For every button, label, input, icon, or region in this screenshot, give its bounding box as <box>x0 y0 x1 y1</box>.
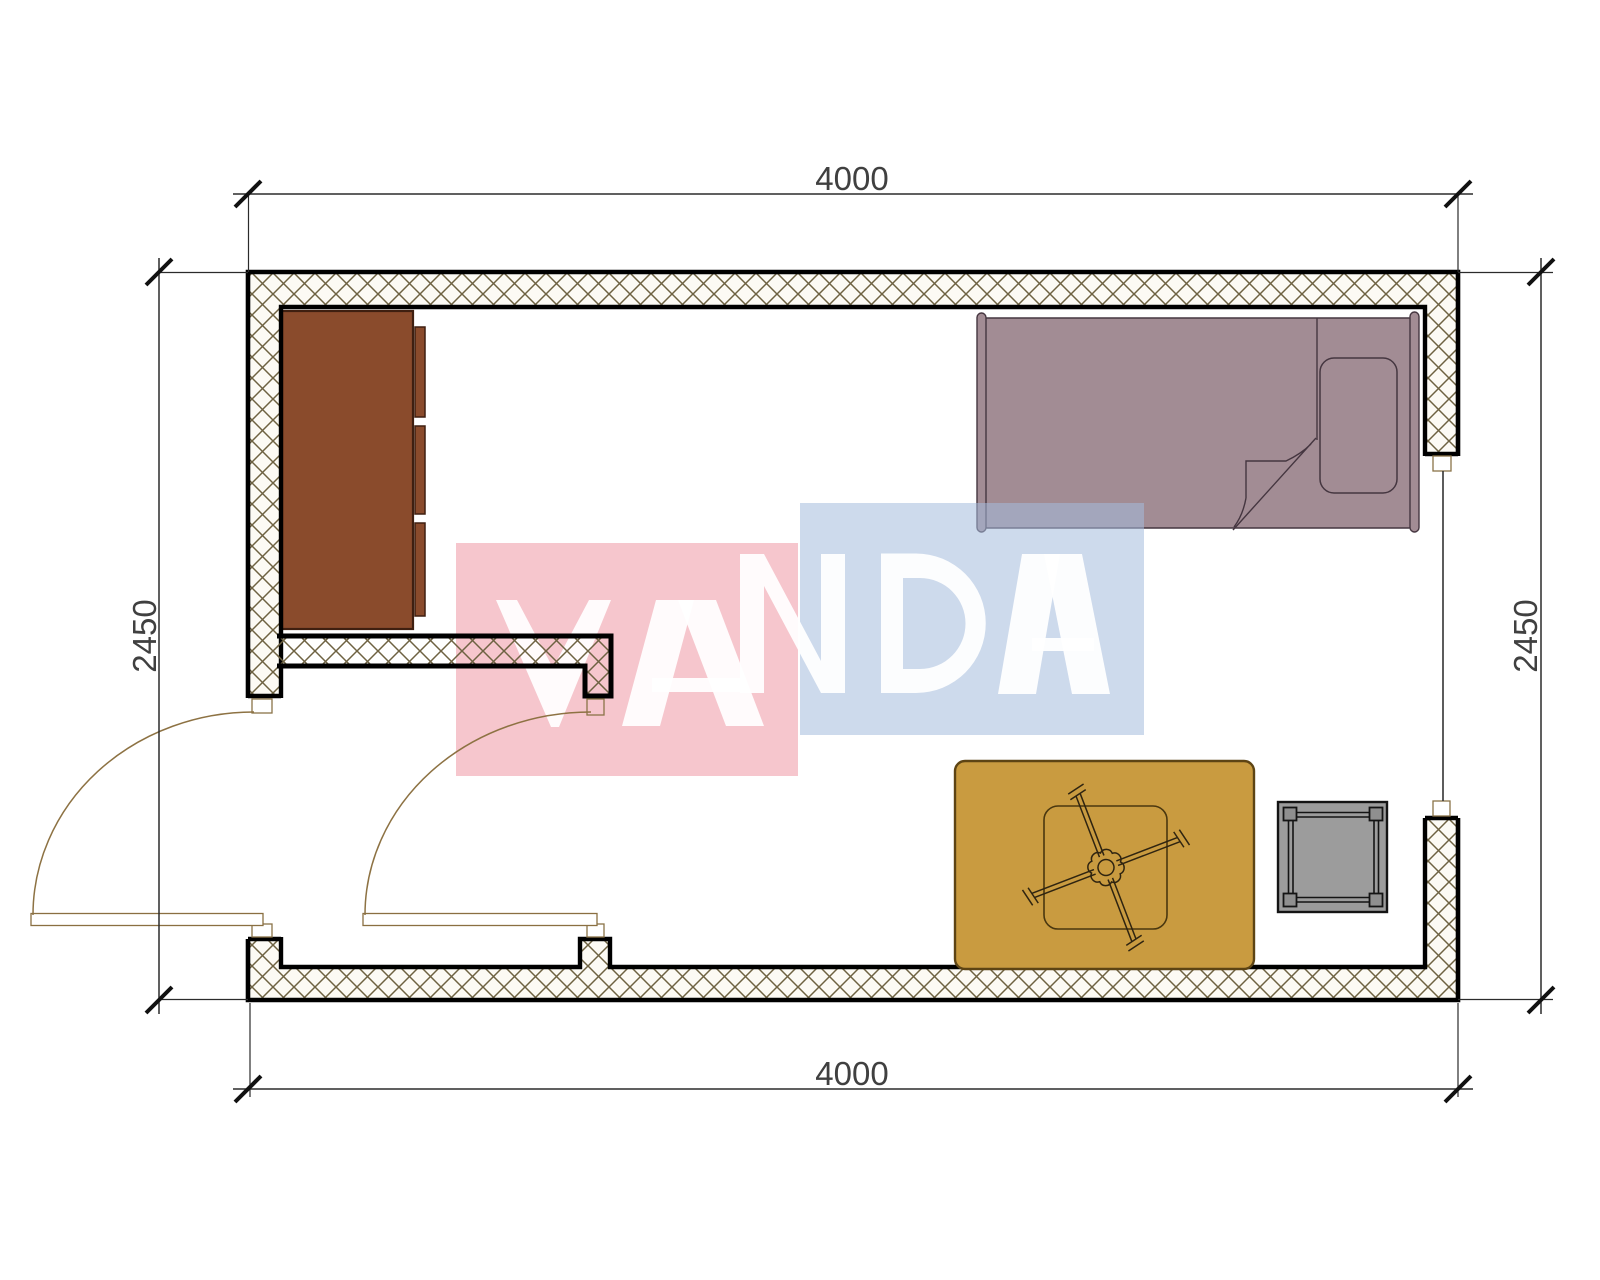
svg-text:4000: 4000 <box>815 1055 888 1092</box>
svg-text:4000: 4000 <box>815 160 888 197</box>
svg-text:2450: 2450 <box>126 599 163 672</box>
svg-text:2450: 2450 <box>1507 599 1544 672</box>
